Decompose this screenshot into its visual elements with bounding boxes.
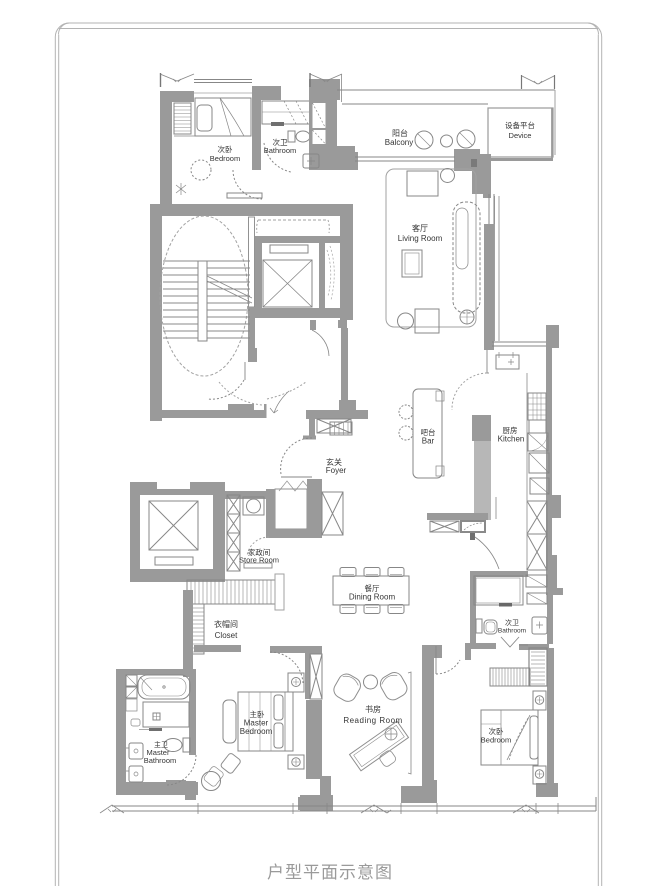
svg-text:设备平台: 设备平台 — [505, 120, 535, 130]
svg-text:Bathroom: Bathroom — [144, 756, 177, 765]
svg-text:厨房: 厨房 — [503, 425, 518, 435]
svg-text:Device: Device — [509, 131, 532, 140]
svg-text:书房: 书房 — [365, 704, 381, 714]
svg-text:衣帽间: 衣帽间 — [214, 619, 238, 629]
svg-text:Closet: Closet — [215, 631, 238, 640]
svg-text:Living Room: Living Room — [398, 234, 443, 243]
svg-text:Bedroom: Bedroom — [210, 154, 240, 163]
svg-text:Bar: Bar — [422, 437, 435, 446]
svg-text:次卧: 次卧 — [218, 144, 233, 154]
svg-text:Dining Room: Dining Room — [349, 593, 396, 602]
svg-text:Bathroom: Bathroom — [498, 628, 526, 635]
svg-text:Bathroom: Bathroom — [264, 146, 297, 155]
svg-text:Balcony: Balcony — [385, 138, 413, 147]
svg-text:户型平面示意图: 户型平面示意图 — [267, 863, 393, 882]
svg-text:Bedroom: Bedroom — [481, 736, 511, 745]
svg-text:主卧: 主卧 — [250, 709, 265, 719]
svg-text:Kitchen: Kitchen — [498, 435, 525, 444]
svg-text:Reading Room: Reading Room — [343, 716, 402, 725]
svg-text:次卧: 次卧 — [489, 726, 504, 736]
svg-text:吧台: 吧台 — [421, 427, 436, 437]
svg-text:次卫: 次卫 — [505, 618, 519, 627]
svg-text:Foyer: Foyer — [326, 466, 347, 475]
svg-text:阳台: 阳台 — [392, 128, 408, 138]
svg-text:客厅: 客厅 — [412, 223, 428, 233]
svg-text:Bedroom: Bedroom — [240, 727, 273, 736]
